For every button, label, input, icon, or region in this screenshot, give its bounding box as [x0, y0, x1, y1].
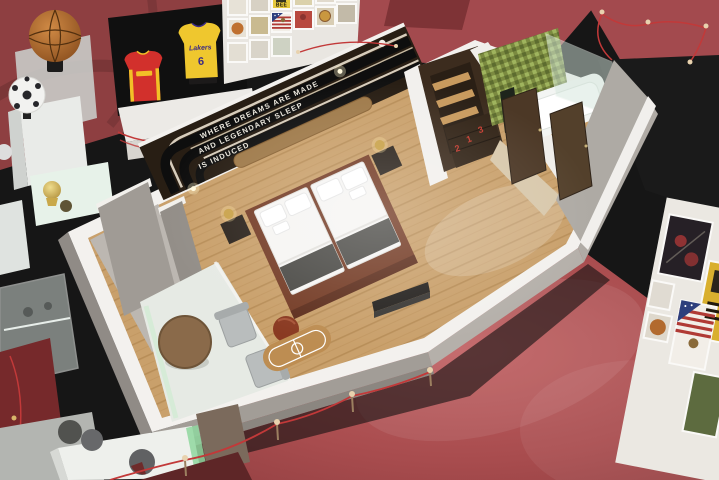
- display-ball-2: [81, 429, 103, 451]
- flag-poster-eagle: [281, 18, 285, 22]
- lakers-jersey-team-text: Lakers: [189, 44, 212, 52]
- poster-frame: [250, 40, 269, 59]
- bee-poster-text: BEE: [276, 3, 288, 9]
- room-light-glow: [165, 80, 595, 350]
- poster-sketch: [228, 0, 247, 15]
- poster-frame: [250, 0, 269, 12]
- round-table: [159, 316, 211, 368]
- poster-cartoon: [250, 16, 269, 35]
- scene-canvas: Lakers 6: [0, 0, 719, 480]
- hotel-room-3d-render: Lakers 6: [0, 0, 719, 480]
- poster-comic: [294, 0, 313, 6]
- lakers-jersey-number: 6: [198, 56, 205, 68]
- display-ball-1: [58, 420, 82, 444]
- dark-ball-trophy: [60, 200, 72, 212]
- poster-small-frame: [648, 280, 675, 310]
- poster-frame: [272, 37, 291, 56]
- poster-frame: [228, 43, 247, 62]
- poster-frame: [337, 4, 356, 23]
- golden-ball-trophy: [43, 181, 61, 199]
- red-display-block: [384, 0, 470, 30]
- basketball: [29, 10, 81, 62]
- red-jersey-chest-mark: [136, 71, 152, 77]
- golden-trophy-base: [46, 198, 58, 206]
- poster-frame: [316, 0, 335, 3]
